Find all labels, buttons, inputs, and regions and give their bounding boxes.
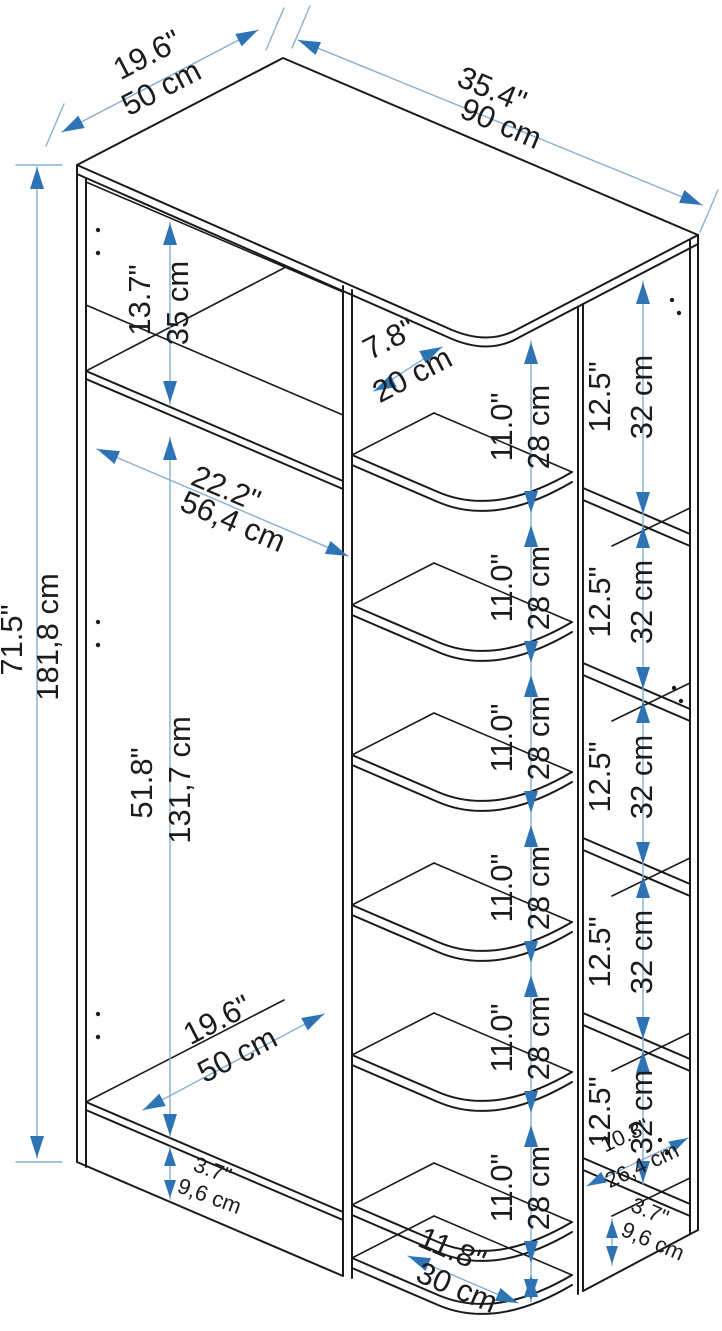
dim-middle-spacing-5-inch: 11.0" bbox=[484, 1003, 519, 1072]
dim-total-height-inch: 71.5" bbox=[0, 604, 29, 675]
dim-middle-spacing-1-inch: 11.0" bbox=[484, 392, 519, 461]
dim-middle-spacing-3-cm: 28 cm bbox=[521, 696, 556, 780]
dim-side-spacing-4-inch: 12.5" bbox=[582, 916, 617, 987]
dim-middle-spacing-2-cm: 28 cm bbox=[521, 546, 556, 630]
dim-middle-spacing-5-cm: 28 cm bbox=[521, 996, 556, 1080]
dim-middle-spacing-4-cm: 28 cm bbox=[521, 846, 556, 930]
dim-side-spacing-2-cm: 32 cm bbox=[624, 560, 659, 644]
dim-side-spacing-4-cm: 32 cm bbox=[624, 910, 659, 994]
dim-middle-spacing-2-inch: 11.0" bbox=[484, 553, 519, 622]
dim-side-spacing-2-inch: 12.5" bbox=[582, 566, 617, 637]
dim-upper-section-inch: 13.7" bbox=[122, 264, 157, 335]
dimension-labels: 19.6" 50 cm 35.4" 90 cm 71.5" 181,8 cm 1… bbox=[0, 23, 688, 1320]
dim-upper-section-cm: 35 cm bbox=[160, 261, 195, 345]
dim-total-height-cm: 181,8 cm bbox=[30, 573, 65, 701]
dim-side-spacing-1-cm: 32 cm bbox=[624, 355, 659, 439]
dim-hanging-height-inch: 51.8" bbox=[124, 747, 159, 818]
dim-middle-spacing-1-cm: 28 cm bbox=[521, 385, 556, 469]
dim-middle-spacing-6-cm: 28 cm bbox=[521, 1146, 556, 1230]
dim-side-spacing-3-inch: 12.5" bbox=[582, 741, 617, 812]
dim-middle-spacing-3-inch: 11.0" bbox=[484, 703, 519, 772]
dim-middle-spacing-6-inch: 11.0" bbox=[484, 1153, 519, 1222]
dim-hanging-height-cm: 131,7 cm bbox=[162, 716, 197, 844]
dim-side-spacing-3-cm: 32 cm bbox=[624, 735, 659, 819]
diagram-canvas: 19.6" 50 cm 35.4" 90 cm 71.5" 181,8 cm 1… bbox=[0, 0, 722, 1331]
wardrobe-dimension-diagram: 19.6" 50 cm 35.4" 90 cm 71.5" 181,8 cm 1… bbox=[0, 0, 722, 1331]
dim-side-spacing-1-inch: 12.5" bbox=[582, 361, 617, 432]
dim-middle-spacing-4-inch: 11.0" bbox=[484, 853, 519, 922]
